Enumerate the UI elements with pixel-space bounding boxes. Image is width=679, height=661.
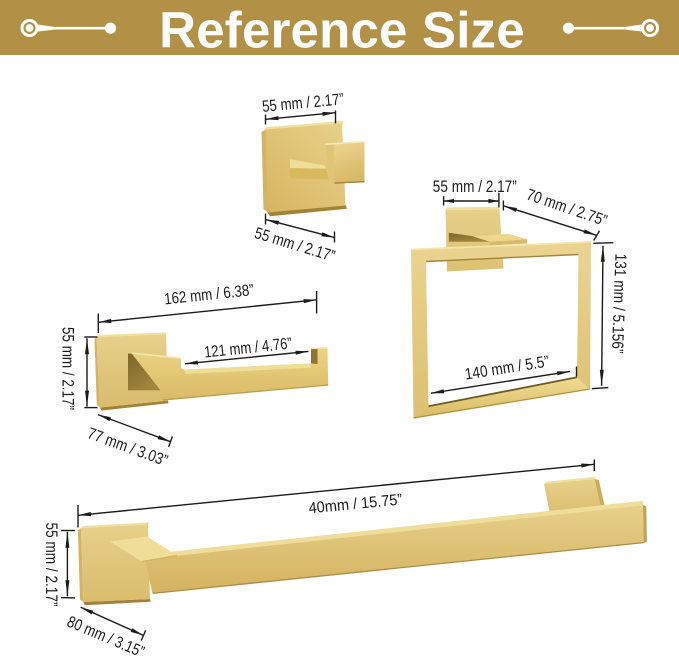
svg-text:55 mm / 2.17”: 55 mm / 2.17” [42, 523, 60, 607]
svg-text:131 mm / 5.156”: 131 mm / 5.156” [608, 253, 629, 354]
svg-text:77 mm / 3.03”: 77 mm / 3.03” [85, 424, 170, 470]
svg-text:55 mm / 2.17”: 55 mm / 2.17” [252, 224, 337, 265]
svg-text:140 mm / 5.5”: 140 mm / 5.5” [464, 353, 551, 384]
svg-text:162 mm / 6.38”: 162 mm / 6.38” [163, 281, 254, 308]
svg-text:Reference Size: Reference Size [159, 1, 525, 58]
svg-text:55 mm / 2.17”: 55 mm / 2.17” [261, 90, 344, 115]
svg-text:55 mm / 2.17”: 55 mm / 2.17” [433, 178, 517, 196]
svg-text:70 mm / 2.75”: 70 mm / 2.75” [524, 186, 609, 230]
svg-text:40mm / 15.75”: 40mm / 15.75” [308, 491, 403, 517]
svg-text:55 mm / 2.17”: 55 mm / 2.17” [59, 327, 77, 410]
svg-text:80 mm / 3.15”: 80 mm / 3.15” [64, 613, 147, 661]
